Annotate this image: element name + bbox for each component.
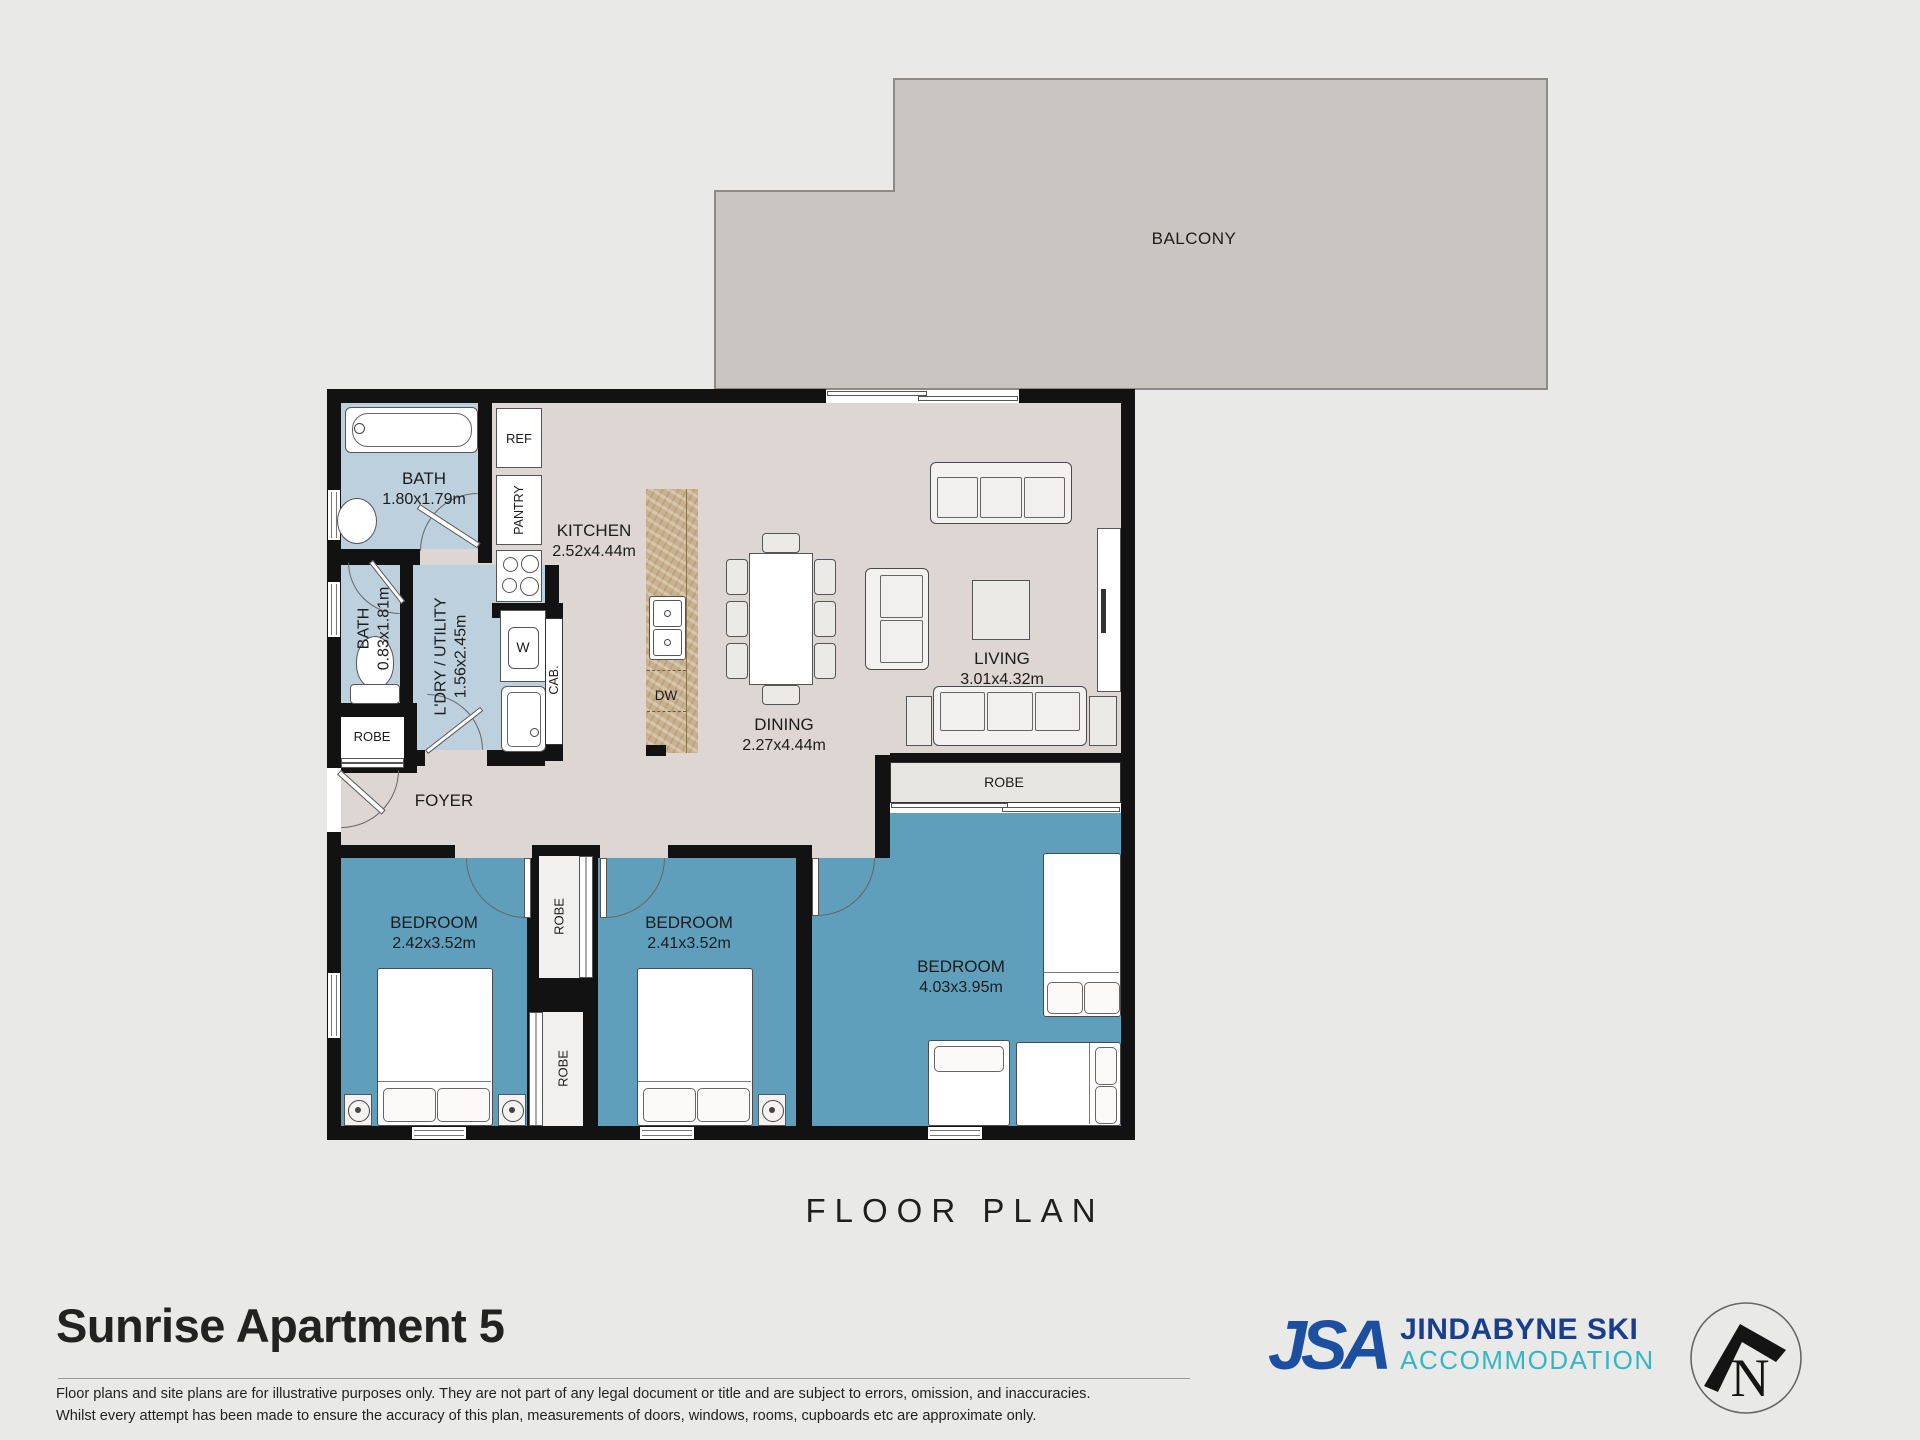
- bedroom3-floor-arm: [890, 813, 1121, 858]
- jsa-logo: JSA JINDABYNE SKI ACCOMMODATION: [1268, 1310, 1655, 1380]
- north-compass: N: [1688, 1300, 1804, 1416]
- wall: [413, 750, 425, 766]
- bath2-window: [328, 582, 340, 637]
- divider: [58, 1378, 1190, 1379]
- jsa-logo-line1: JINDABYNE SKI: [1400, 1314, 1654, 1346]
- laundry-label: L'DRY / UTILITY 1.56x2.45m: [432, 569, 473, 743]
- bedroom3-robe-doors: [890, 803, 1121, 813]
- tv-unit: [1097, 528, 1121, 692]
- robe-lower-label: ROBE: [556, 1039, 571, 1099]
- washer-label: W: [507, 639, 539, 655]
- pillow: [1084, 982, 1120, 1014]
- wall: [327, 845, 455, 858]
- pillow: [1095, 1086, 1117, 1124]
- bedroom3-door-leaf: [812, 858, 819, 916]
- disclaimer-line2: Whilst every attempt has been made to en…: [56, 1408, 1036, 1424]
- pillow: [383, 1088, 436, 1122]
- dining-chair: [762, 533, 800, 553]
- floor-plan-title: FLOOR PLAN: [760, 1192, 1150, 1230]
- bath2-label: BATH 0.83x1.81m: [355, 548, 396, 708]
- bedside-lamp: [498, 1094, 526, 1126]
- jsa-logo-initials: JSA: [1268, 1310, 1386, 1380]
- dining-chair: [814, 601, 836, 637]
- wall: [1019, 389, 1135, 403]
- pillow: [1095, 1047, 1117, 1085]
- wall: [400, 565, 413, 715]
- dining-chair: [726, 643, 748, 679]
- pillow: [697, 1088, 750, 1122]
- ref-label: REF: [496, 431, 542, 446]
- bedroom1-window-left: [328, 973, 340, 1038]
- wall: [545, 745, 563, 761]
- dishwasher-label: DW: [646, 688, 686, 703]
- kitchen-label: KITCHEN 2.52x4.44m: [514, 520, 674, 562]
- balcony-seam-patch: [890, 194, 898, 386]
- bedroom1-label: BEDROOM 2.42x3.52m: [354, 912, 514, 954]
- entry-opening: [327, 768, 341, 832]
- dining-chair: [814, 559, 836, 595]
- wall: [875, 755, 890, 858]
- bedroom2-opening: [600, 845, 668, 858]
- bedroom3-window: [928, 1127, 982, 1139]
- bedroom1-window: [412, 1127, 466, 1139]
- dining-table: [749, 553, 813, 685]
- jsa-logo-line2: ACCOMMODATION: [1400, 1346, 1654, 1376]
- bedroom3-label: BEDROOM 4.03x3.95m: [881, 956, 1041, 998]
- wall: [487, 750, 545, 766]
- balcony-area-left: [714, 190, 895, 390]
- foyer-robe-doors: [341, 758, 404, 768]
- wall: [796, 845, 812, 1126]
- page-title: Sunrise Apartment 5: [56, 1298, 504, 1353]
- robe-upper-label: ROBE: [552, 887, 567, 947]
- foyer-label: FOYER: [374, 790, 514, 812]
- robe-upper-sliding-door: [579, 856, 593, 978]
- foyer-robe-label: ROBE: [342, 729, 402, 744]
- wall: [545, 565, 559, 618]
- bedroom2-window: [640, 1127, 694, 1139]
- side-table: [1089, 696, 1117, 746]
- dining-chair: [726, 601, 748, 637]
- loveseat: [865, 568, 929, 670]
- disclaimer-line1: Floor plans and site plans are for illus…: [56, 1386, 1091, 1402]
- north-compass-icon: N: [1688, 1300, 1804, 1416]
- cab-label: CAB.: [547, 650, 561, 710]
- pillow: [643, 1088, 696, 1122]
- bedroom1-opening: [455, 845, 532, 858]
- side-table: [906, 696, 932, 746]
- pillow: [934, 1046, 1004, 1072]
- dining-chair: [762, 685, 800, 705]
- balcony-label: BALCONY: [1094, 228, 1294, 250]
- wall: [1121, 389, 1135, 1140]
- sofa-bottom: [933, 686, 1087, 746]
- wall: [668, 845, 796, 858]
- robe-lower-sliding-door: [529, 1012, 543, 1126]
- island-sink: [649, 596, 686, 660]
- bedroom2-label: BEDROOM 2.41x3.52m: [609, 912, 769, 954]
- wall: [327, 389, 826, 403]
- coffee-table: [972, 580, 1030, 640]
- dining-chair: [814, 643, 836, 679]
- bedside-lamp: [344, 1094, 372, 1126]
- pillow: [1047, 982, 1083, 1014]
- bedroom1-door-leaf: [524, 858, 531, 918]
- balcony-sliding-door: [826, 390, 1019, 403]
- bath1-label: BATH 1.80x1.79m: [344, 468, 504, 510]
- island-end-panel: [646, 745, 666, 756]
- bedroom2-door-leaf: [600, 858, 607, 918]
- laundry-sink: [501, 686, 546, 752]
- pillow: [437, 1088, 490, 1122]
- living-label: LIVING 3.01x4.32m: [922, 648, 1082, 690]
- sofa-top: [930, 462, 1072, 524]
- bedroom3-opening: [812, 845, 875, 858]
- floor-plan-canvas: BALCONY: [0, 0, 1920, 1440]
- bedside-lamp: [758, 1094, 786, 1126]
- dining-label: DINING 2.27x4.44m: [704, 714, 864, 756]
- dining-chair: [726, 559, 748, 595]
- bathtub: [345, 407, 478, 453]
- footer: Sunrise Apartment 5 Floor plans and site…: [0, 1280, 1920, 1440]
- bedroom3-robe-label: ROBE: [944, 774, 1064, 790]
- compass-letter: N: [1731, 1348, 1770, 1408]
